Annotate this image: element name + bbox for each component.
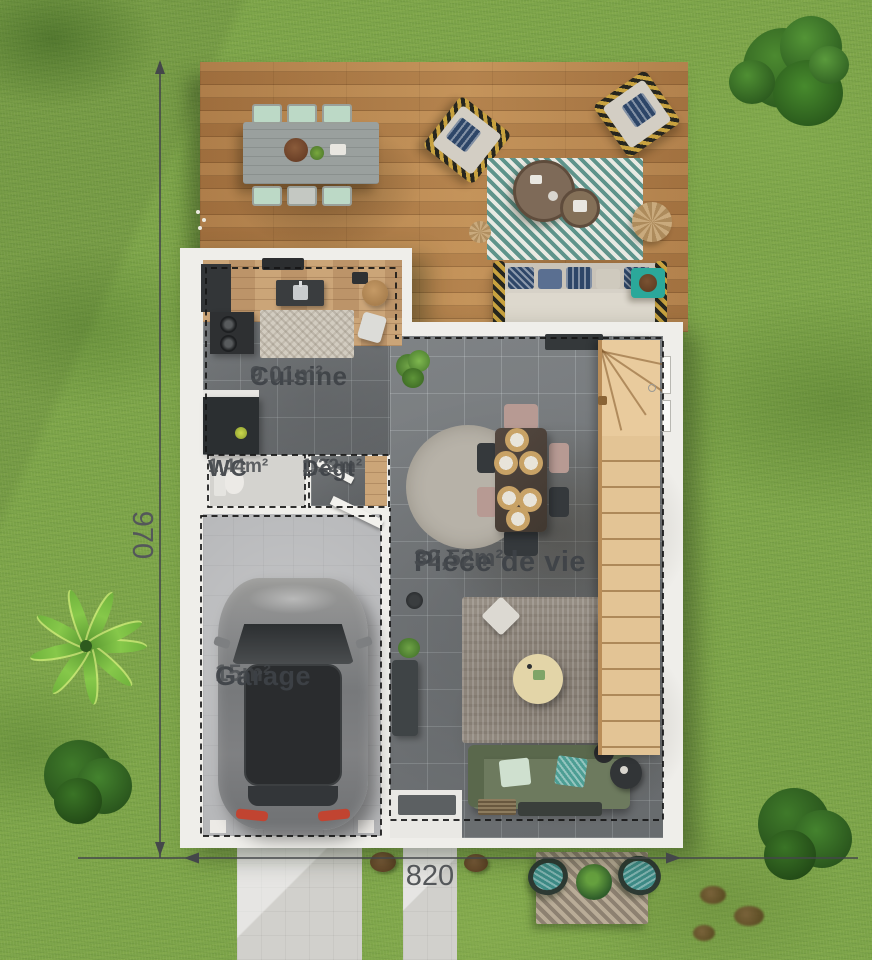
dimension-label-width: 820 — [394, 860, 466, 893]
room-area: 15m² — [215, 661, 271, 688]
floor-plan-canvas: Cuisine 9.01m² WC 1,44m² Dégt 1,22m² Piè… — [0, 0, 872, 960]
room-area: 1,44m² — [208, 456, 268, 477]
plan-annotation-overlay — [0, 0, 872, 960]
room-area: 32,52m² — [414, 546, 503, 573]
dimension-label-height: 970 — [128, 495, 158, 575]
dimension-lines — [78, 60, 858, 864]
room-area: 9.01m² — [250, 362, 323, 388]
room-area: 1,22m² — [302, 456, 362, 477]
